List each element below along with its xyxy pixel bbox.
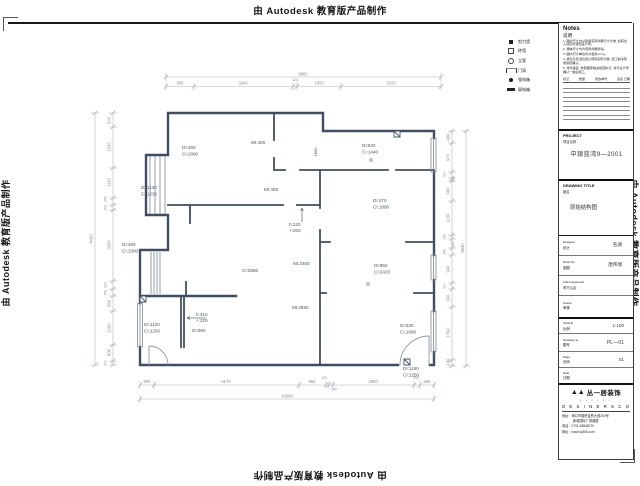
dimension-text: 140 — [443, 234, 447, 240]
room-annotation: MI:2850 — [292, 305, 309, 310]
room-annotation: DI:950 — [192, 328, 206, 333]
company-phone: 电话：0791-63848270 — [562, 424, 630, 429]
divider — [562, 411, 630, 412]
room-annotation: DI:1150 — [403, 366, 419, 371]
legend-label: 门洞 — [518, 68, 526, 74]
dimension-text: 200 — [413, 376, 419, 380]
drawing-no-value: PL—01 — [607, 340, 624, 346]
room-annotation: +:200 — [289, 228, 301, 233]
notes-title: Notes — [563, 26, 630, 32]
leader-arrows — [187, 208, 304, 320]
legend-label: 弱电箱 — [518, 87, 530, 93]
room-annotation: CI:1890 — [400, 330, 417, 335]
legend-label: 砖墙 — [518, 48, 526, 54]
dimension-text: 550 — [107, 299, 112, 307]
room-annotation: DI:930 — [362, 143, 376, 148]
rev-col: 数量 — [579, 77, 585, 81]
check-label-cn: 审核 — [563, 305, 572, 310]
rev-col: 标记 — [563, 77, 569, 81]
dimension-text: 120 — [321, 376, 327, 380]
scale-value: 1:100 — [613, 323, 625, 328]
drawing-no-row: Drawing no 图号 PL—01 — [559, 334, 633, 352]
room-annotation: DI:490 — [182, 145, 196, 150]
legend-label: 剪力墙 — [518, 39, 530, 45]
room-annotation: CI:1230 — [141, 192, 158, 197]
legend-label: 立管 — [518, 58, 526, 64]
dimension-text: 1150 — [446, 213, 451, 223]
scale-label-cn: 比例 — [563, 326, 573, 331]
dimension-text: 550 — [424, 379, 432, 384]
signatures-section: Designer 设计 名湖 Draw No 制图 唐伟瑞 Client app… — [559, 235, 633, 318]
drawing-sheet: 由 Autodesk 教育版产品制作 由 Autodesk 教育版产品制作 由 … — [0, 0, 640, 486]
draw-no-row: Draw No 制图 唐伟瑞 — [559, 256, 633, 276]
project-label-en: PROJECT — [563, 133, 630, 138]
note-item: 4. 梁位及管道位置以现场实际为准, 施工前请现场复核确认。 — [563, 58, 630, 66]
dimension-text: 9430 — [89, 234, 94, 244]
room-annotation: CI:1890 — [182, 152, 199, 157]
room-annotation: DI:470 — [373, 198, 387, 203]
date-label-en: Date — [563, 371, 570, 375]
window-right-lower — [431, 311, 436, 352]
dimension-text: 600 — [446, 294, 451, 302]
room-annotation: DI:960 — [374, 263, 388, 268]
dimension-text: 940 — [446, 265, 451, 273]
dimension-text: 120 — [292, 78, 298, 82]
page-label-en: Page — [563, 355, 570, 359]
legend-item: 弱电箱 — [504, 85, 556, 95]
legend-item: 立管 — [504, 56, 556, 66]
page-value: 01 — [619, 357, 624, 362]
note-item: 5. 未尽事宜, 参照国家相关规范执行, 并与设计师确认一致后施工。 — [563, 67, 630, 75]
dimension-text: 290 — [451, 241, 455, 247]
legend: 剪力墙 砖墙 立管 门洞 强电箱 弱电箱 — [504, 37, 556, 95]
room-annotation: MI:408 — [251, 140, 265, 145]
dimension-text: 250 — [104, 290, 108, 296]
brick-wall-icon — [504, 48, 518, 54]
shear-wall-icon — [504, 40, 518, 44]
company-section: ▲▲ 丛一居装饰 ▪ ▪ ▪ ▪ ▪ ▪ D E S I N E R S C O… — [559, 383, 633, 459]
legend-item: 剪力墙 — [504, 37, 556, 47]
dimension-text: 500 — [144, 379, 152, 384]
dimension-lines — [91, 73, 470, 403]
drawing-title-value: 原始结构图 — [570, 203, 630, 211]
company-web: 网址：www.xy365.com — [562, 430, 630, 435]
room-annotation: 1890 — [313, 147, 318, 157]
project-name: 中银蓝湾9—2001 — [563, 149, 630, 158]
company-dots: ▪ ▪ ▪ ▪ ▪ ▪ — [562, 398, 630, 402]
dimension-text: 9960 — [298, 72, 308, 77]
company-tagline: D E S I N E R S C O — [562, 404, 630, 409]
dimension-text: 190 — [446, 358, 451, 366]
window-right-upper — [431, 138, 436, 172]
shaft-hatch — [151, 252, 160, 294]
room-annotation: CI:2860 — [242, 268, 259, 273]
pipe-icon — [504, 58, 518, 64]
dimension-text: 3240 — [238, 81, 248, 86]
scale-row: SCALE 比例 1:100 — [559, 319, 633, 335]
client-approved-label-en: Client approved — [563, 280, 584, 284]
legend-label: 强电箱 — [518, 77, 530, 83]
dimension-text: 1260 — [107, 323, 112, 333]
dimension-text: 260 — [104, 196, 108, 202]
meta-section: SCALE 比例 1:100 Drawing no 图号 PL—01 Page … — [559, 317, 633, 385]
window-right-middle — [431, 255, 436, 280]
dimension-text: 200 — [443, 171, 447, 177]
room-annotation: MI:408 — [264, 187, 278, 192]
page-row: Page 页码 01 — [559, 352, 633, 368]
step-leader-center — [301, 208, 304, 222]
room-annotation: h:310 — [196, 312, 208, 317]
dimension-text: 200 — [104, 205, 108, 211]
low-voltage-box-icon — [504, 88, 518, 91]
switch-mark-1 — [370, 159, 373, 162]
title-block: Notes 说明 1. 图中尺寸均以现场实际测量尺寸为准, 如有出入请及时通知设… — [558, 23, 634, 460]
drawing-no-label-cn: 图号 — [563, 342, 578, 347]
dimension-text: 1600 — [314, 81, 324, 86]
page-label-cn: 页码 — [563, 359, 570, 364]
legend-item: 门洞 — [504, 66, 556, 76]
room-annotation: CI:2420 — [374, 270, 391, 275]
company-logo: ▲▲ 丛一居装饰 — [562, 388, 630, 397]
designer-value: 名湖 — [613, 242, 622, 248]
room-annotation: CI:1900 — [122, 249, 139, 254]
designer-label-cn: 设计 — [563, 245, 575, 250]
check-label-en: Check — [563, 301, 572, 305]
room-annotation: DI:1120 — [144, 322, 160, 327]
dimension-text: 200 — [443, 283, 447, 289]
company-name: 丛一居装饰 — [587, 388, 621, 397]
notes-subtitle: 说明 — [563, 33, 630, 39]
room-annotation: MI:2450 — [293, 261, 310, 266]
plan-annotations: DI:490CI:1890MI:408MI:408DI:930CI:1440DI… — [89, 72, 466, 399]
dimension-text: 1790 — [446, 328, 451, 338]
company-contact: 地址：海口市国贸金贸大道200号 新城国际广场裙楼 电话：0791-638482… — [562, 414, 630, 434]
company-address-1: 地址：海口市国贸金贸大道200号 — [562, 414, 630, 419]
revision-table-rules — [563, 84, 630, 120]
window-bath-left — [138, 303, 143, 347]
door-swings — [149, 336, 429, 365]
project-label-cn: 项目名称 — [563, 139, 630, 144]
draw-no-label-cn: 制图 — [563, 265, 575, 270]
dimension-text: 10090 — [281, 394, 293, 399]
drawing-title-label-cn: 图名 — [563, 189, 630, 194]
dimension-text: 2900 — [368, 379, 378, 384]
drawing-title-section: DRAWING TITLE 图名 原始结构图 — [559, 179, 633, 235]
room-annotation: DI:1130 — [141, 185, 157, 190]
project-section: PROJECT 项目名称 中银蓝湾9—2001 — [559, 129, 633, 179]
dimension-text: 200 — [104, 360, 108, 366]
bath-door-arc — [149, 346, 168, 365]
drawing-no-label-en: Drawing no — [563, 338, 578, 342]
dimension-text: 140 — [331, 388, 337, 392]
dimension-text: 3200 — [386, 81, 396, 86]
revision-table-header: 标记 数量 修改单号 签名 日期 — [563, 77, 630, 83]
legend-item: 砖墙 — [504, 47, 556, 57]
dimension-text: 2650 — [107, 240, 112, 250]
designer-row: Designer 设计 名湖 — [559, 236, 633, 256]
legend-item: 强电箱 — [504, 75, 556, 85]
client-approved-label-cn: 甲方认定 — [563, 285, 584, 290]
dimension-text: 400 — [446, 133, 451, 141]
rev-col: 修改单号 — [595, 77, 607, 81]
room-annotation: DI:490 — [122, 242, 136, 247]
power-box-icon — [504, 78, 518, 82]
notes-section: Notes 说明 1. 图中尺寸均以现场实际测量尺寸为准, 如有出入请及时通知设… — [559, 23, 633, 129]
dimension-text: 900 — [177, 81, 185, 86]
date-row: Date 日期 — [559, 368, 633, 384]
room-annotation: CI:1250 — [144, 329, 161, 334]
check-row: Check 审核 — [559, 296, 633, 316]
room-annotation: CI:1440 — [362, 150, 379, 155]
room-annotation: DI:530 — [400, 323, 414, 328]
dimension-text: 100 — [451, 177, 455, 183]
scale-label-en: SCALE — [563, 321, 573, 325]
mountain-logo-icon: ▲▲ — [571, 389, 585, 396]
dimension-text: 1110 — [107, 177, 112, 186]
dimension-text: 300 — [104, 282, 108, 288]
drawing-title-label-en: DRAWING TITLE — [563, 183, 630, 188]
draw-no-label-en: Draw No — [563, 260, 575, 264]
room-annotation: +:220 — [196, 318, 208, 323]
rev-col: 签名 日期 — [617, 77, 630, 81]
room-annotation: CI:1890 — [373, 205, 390, 210]
dimension-text: 5170 — [221, 379, 231, 384]
dimension-text: 520 — [107, 116, 112, 124]
door-opening-icon — [504, 68, 518, 73]
switch-mark-2 — [367, 283, 370, 286]
date-label-cn: 日期 — [563, 375, 570, 380]
client-approved-row: Client approved 甲方认定 — [559, 276, 633, 296]
dimension-text: 690 — [446, 187, 451, 195]
window-hatches — [138, 138, 437, 352]
room-annotation: h:220 — [289, 222, 301, 227]
dimension-text: 8930 — [460, 243, 465, 253]
dimension-text: 960 — [309, 379, 317, 384]
draw-no-value: 唐伟瑞 — [608, 262, 622, 268]
walls-interior — [168, 113, 434, 365]
dimension-text: 970 — [446, 153, 451, 161]
dimension-text: 1530 — [107, 142, 112, 152]
dimension-text: 600 — [107, 348, 112, 356]
dimension-text: 240 — [443, 249, 447, 255]
designer-label-en: Designer — [563, 240, 575, 244]
